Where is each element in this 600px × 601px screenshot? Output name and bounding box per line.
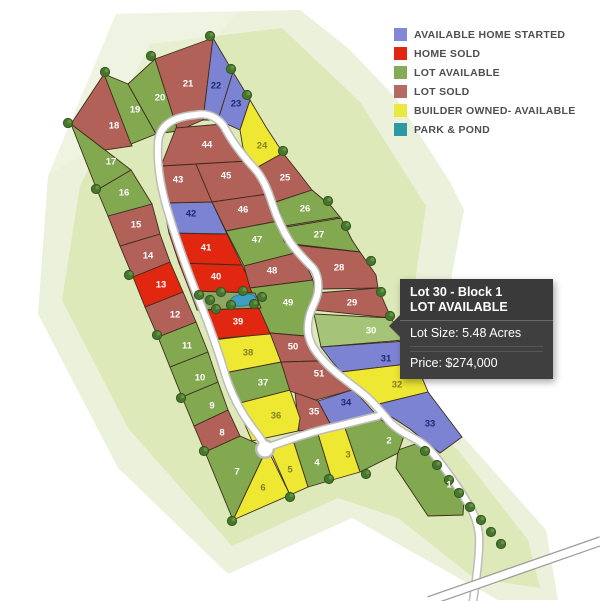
tree-icon bbox=[152, 330, 161, 339]
tree-icon bbox=[91, 184, 100, 193]
legend-item-home-sold: HOME SOLD bbox=[394, 47, 576, 60]
tooltip-header: Lot 30 - Block 1 LOT AVAILABLE bbox=[400, 279, 553, 321]
tree-icon bbox=[176, 393, 185, 402]
tooltip-arrow-icon bbox=[389, 315, 400, 337]
tree-icon bbox=[226, 64, 235, 73]
tree-icon bbox=[226, 300, 235, 309]
tooltip-lot-size: Lot Size: 5.48 Acres bbox=[400, 321, 553, 344]
tree-icon bbox=[454, 488, 463, 497]
legend-item-available-home-started: AVAILABLE HOME STARTED bbox=[394, 28, 576, 41]
tree-icon bbox=[341, 221, 350, 230]
legend-label: BUILDER OWNED- AVAILABLE bbox=[414, 105, 576, 117]
tree-icon bbox=[100, 67, 109, 76]
tree-icon bbox=[486, 527, 495, 536]
plat-map: 1234567891011121314151617181920212223242… bbox=[0, 0, 600, 601]
home-sold-swatch-icon bbox=[394, 47, 407, 60]
tree-icon bbox=[227, 516, 236, 525]
park-pond-swatch-icon bbox=[394, 123, 407, 136]
legend-item-lot-available: LOT AVAILABLE bbox=[394, 66, 576, 79]
tree-icon bbox=[216, 287, 225, 296]
tree-icon bbox=[278, 146, 287, 155]
tree-icon bbox=[496, 539, 505, 548]
lot-info-tooltip: Lot 30 - Block 1 LOT AVAILABLE Lot Size:… bbox=[400, 279, 553, 379]
builder-owned-swatch-icon bbox=[394, 104, 407, 117]
tree-icon bbox=[146, 51, 155, 60]
legend-item-builder-owned: BUILDER OWNED- AVAILABLE bbox=[394, 104, 576, 117]
tree-icon bbox=[124, 270, 133, 279]
legend-label: AVAILABLE HOME STARTED bbox=[414, 29, 565, 41]
tree-icon bbox=[366, 256, 375, 265]
legend-label: HOME SOLD bbox=[414, 48, 480, 60]
lot-sold-swatch-icon bbox=[394, 85, 407, 98]
tooltip-lot-price: Price: $274,000 bbox=[400, 352, 553, 379]
tree-icon bbox=[249, 299, 258, 308]
tree-icon bbox=[420, 446, 429, 455]
tree-icon bbox=[199, 446, 208, 455]
legend-item-lot-sold: LOT SOLD bbox=[394, 85, 576, 98]
legend-label: LOT SOLD bbox=[414, 86, 469, 98]
legend: AVAILABLE HOME STARTEDHOME SOLDLOT AVAIL… bbox=[394, 28, 576, 142]
tree-icon bbox=[376, 287, 385, 296]
available-home-started-swatch-icon bbox=[394, 28, 407, 41]
tree-icon bbox=[211, 304, 220, 313]
tree-icon bbox=[242, 90, 251, 99]
tree-icon bbox=[205, 295, 214, 304]
legend-label: PARK & POND bbox=[414, 124, 490, 136]
tree-icon bbox=[476, 515, 485, 524]
tree-icon bbox=[205, 31, 214, 40]
tree-icon bbox=[63, 118, 72, 127]
tree-icon bbox=[194, 290, 203, 299]
tooltip-lot-status: LOT AVAILABLE bbox=[410, 300, 543, 315]
tree-icon bbox=[432, 460, 441, 469]
tree-icon bbox=[465, 502, 474, 511]
tree-icon bbox=[444, 475, 453, 484]
tree-icon bbox=[285, 492, 294, 501]
legend-item-park-pond: PARK & POND bbox=[394, 123, 576, 136]
tree-icon bbox=[257, 292, 266, 301]
tooltip-lot-title: Lot 30 - Block 1 bbox=[410, 285, 543, 300]
lot-available-swatch-icon bbox=[394, 66, 407, 79]
tree-icon bbox=[324, 474, 333, 483]
tree-icon bbox=[238, 286, 247, 295]
legend-label: LOT AVAILABLE bbox=[414, 67, 500, 79]
tree-icon bbox=[361, 469, 370, 478]
tree-icon bbox=[323, 196, 332, 205]
